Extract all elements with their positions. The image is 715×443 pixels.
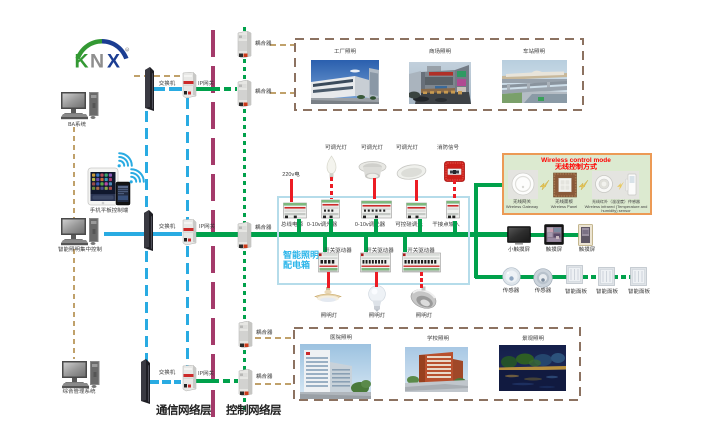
svg-text:X: X [107,51,120,70]
svg-text:N: N [90,51,104,70]
svg-text:K: K [75,51,89,70]
